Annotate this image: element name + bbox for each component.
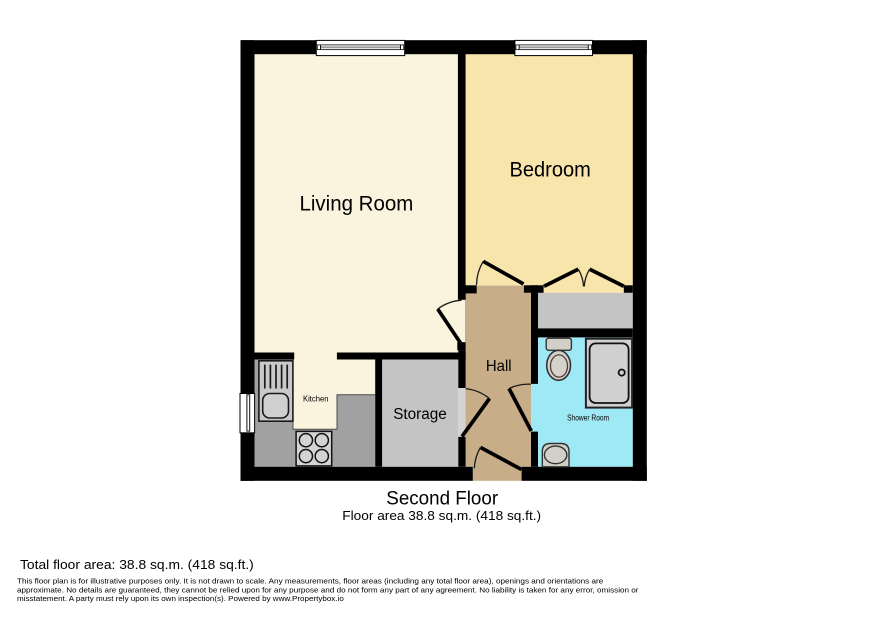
svg-text:Total floor area: 38.8 sq.m. (: Total floor area: 38.8 sq.m. (418 sq.ft.… [20, 557, 254, 572]
svg-text:Living Room: Living Room [300, 193, 414, 216]
svg-text:This floor plan is for illustr: This floor plan is for illustrative purp… [17, 576, 603, 585]
svg-text:Storage: Storage [393, 406, 447, 423]
svg-text:misstatement. A party must rel: misstatement. A party must rely upon its… [17, 594, 344, 603]
svg-text:Shower Room: Shower Room [567, 413, 609, 422]
svg-text:Kitchen: Kitchen [303, 394, 329, 403]
svg-text:Bedroom: Bedroom [510, 159, 591, 182]
svg-text:Hall: Hall [486, 358, 512, 375]
svg-text:approximate. No details are gu: approximate. No details are guaranteed, … [17, 585, 639, 594]
svg-text:Floor area 38.8 sq.m. (418 sq.: Floor area 38.8 sq.m. (418 sq.ft.) [342, 508, 541, 523]
svg-text:Second Floor: Second Floor [386, 488, 498, 509]
